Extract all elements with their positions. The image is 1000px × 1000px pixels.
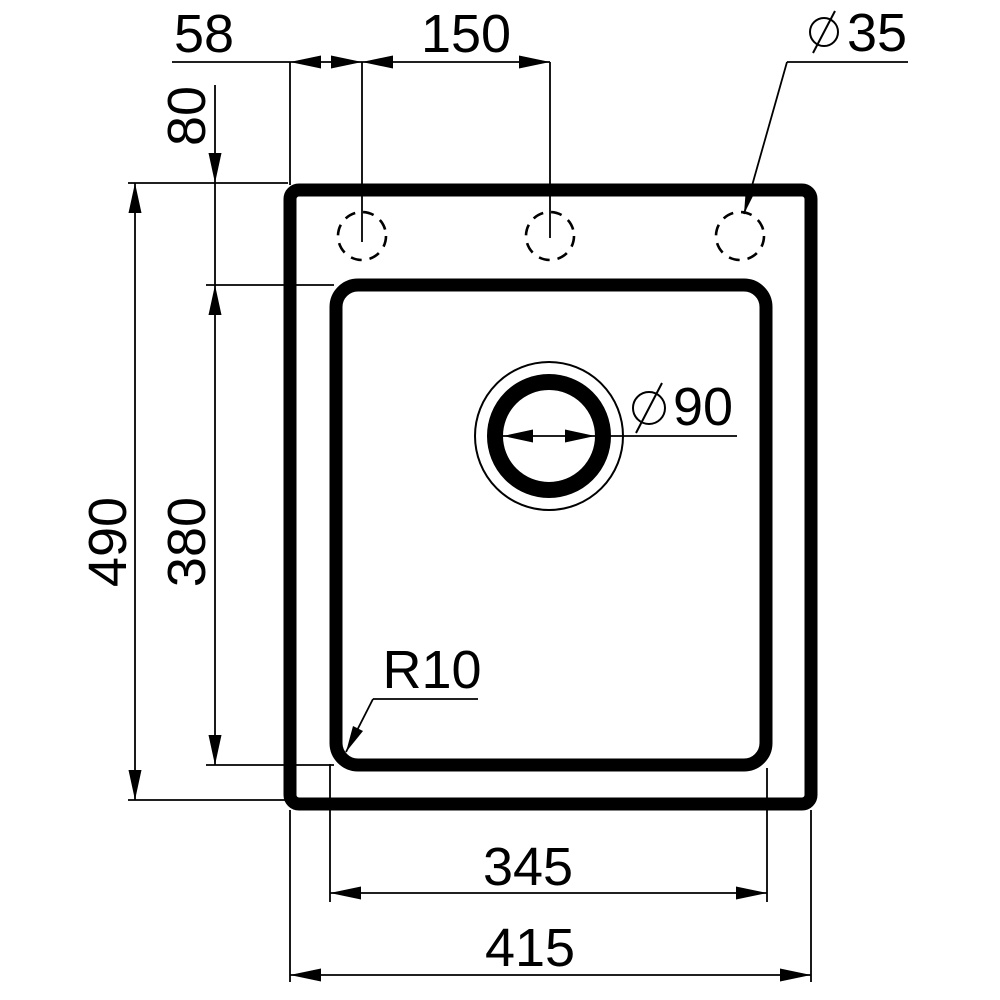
dim-label-dia90: 90 [673,377,733,437]
dim-label-80: 80 [157,86,217,146]
dim-label-380: 380 [157,497,217,587]
arrowhead [362,56,393,69]
dim-label-r10: R10 [382,640,481,700]
dim-label-490: 490 [78,497,138,587]
arrowhead [290,56,321,69]
arrowhead [736,887,767,900]
arrowhead [331,56,362,69]
arrowhead [780,969,811,982]
dim-label-150: 150 [421,4,511,64]
arrowhead [129,770,142,800]
dim-label-415: 415 [485,918,575,978]
arrowhead [209,285,222,315]
arrowhead [519,56,550,69]
arrowhead [209,735,222,765]
arrowhead [209,153,222,183]
arrowhead [330,887,361,900]
technical-drawing: 58 150 35 80 490 380 90 R10 345 415 [0,0,1000,1000]
dim-label-345: 345 [483,837,573,897]
diameter-symbol-35 [810,11,838,53]
dim-label-dia35: 35 [847,3,907,63]
arrowhead [290,969,321,982]
dim-label-58: 58 [174,4,234,64]
drawing-canvas: 58 150 35 80 490 380 90 R10 345 415 [0,0,1000,1000]
arrowhead [129,183,142,213]
